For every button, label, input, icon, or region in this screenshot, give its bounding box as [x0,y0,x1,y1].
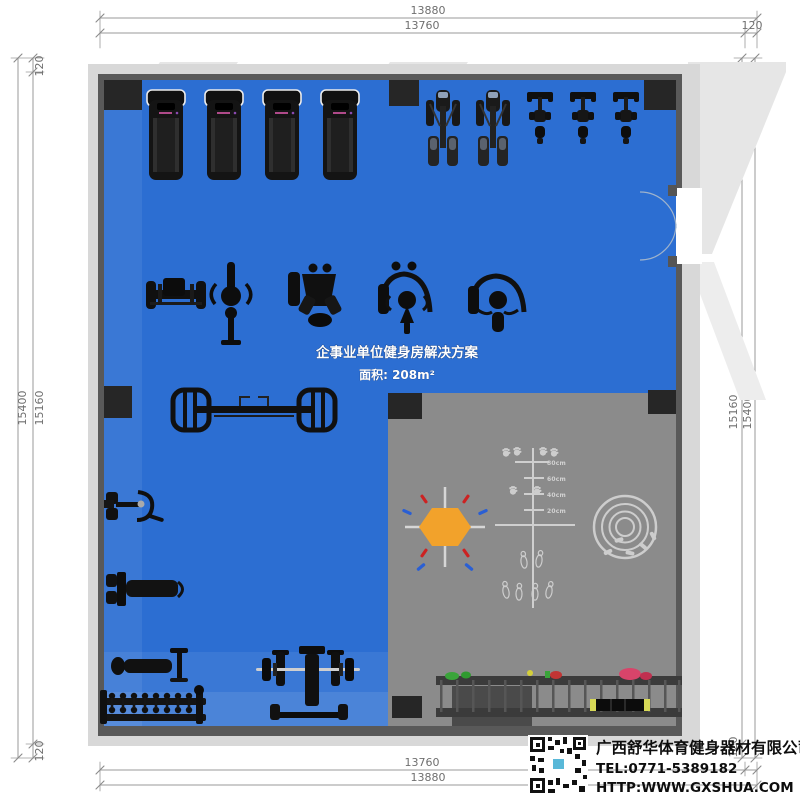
dim-top-outer: 13880 [411,4,446,17]
treadmill-icon [147,90,185,180]
dim-left-wall-bottom: 120 [33,741,46,762]
plan-area-label: 面积: 208m² [359,367,435,382]
door-leaf [668,185,677,196]
column [104,80,142,110]
company-website: HTTP:WWW.GXSHUA.COM [596,780,794,796]
door-leaf [668,256,677,267]
barbell-black [596,699,644,711]
column [648,390,676,414]
ruler-label-60cm: 60cm [547,476,566,483]
kettlebell-yellow [527,670,533,676]
wall-cap-shadow [688,62,786,254]
barbell-plate-yellow [644,699,650,711]
column [104,386,132,418]
dim-bottom-outer: 13880 [411,771,446,784]
column [389,80,419,106]
gym-floor-plan: 13880 13760 120 13760 13880 15400 15160 … [0,0,800,807]
column [388,393,422,419]
column [644,80,676,110]
dim-left-inner: 15160 [33,391,46,426]
kettlebell-red [550,671,562,679]
door-opening [676,188,702,264]
company-tel: TEL:0771-5389182 [596,761,737,777]
dim-top-inner: 13760 [405,19,440,32]
kettlebell-pink [619,668,641,680]
treadmill-icon [321,90,359,180]
ruler-label-40cm: 40cm [547,492,566,499]
treadmill-icon [263,90,301,180]
barbell-plate-yellow [590,699,596,711]
dim-right-inner: 15160 [727,395,740,430]
strength-machine-icon [146,278,206,309]
treadmill-icon [205,90,243,180]
ruler-label-80cm: 80cm [547,460,566,467]
dim-bottom-inner: 13760 [405,756,440,769]
company-name: 广西舒华体育健身器材有限公司 [596,738,800,757]
qr-code [528,735,588,795]
column [392,696,422,718]
plan-title: 企事业单位健身房解决方案 [315,344,478,361]
kettlebell-green [445,672,459,680]
dim-left-wall-top: 120 [33,56,46,77]
dim-left-outer: 15400 [16,391,29,426]
kettlebell-green [461,672,471,679]
kettlebell-green [545,671,550,678]
company-info-block: 广西舒华体育健身器材有限公司 TEL:0771-5389182 HTTP:WWW… [528,735,800,796]
ruler-label-20cm: 20cm [547,508,566,515]
kettlebell-red [640,672,652,680]
dim-top-wall: 120 [742,19,763,32]
floor-plan-canvas: 13880 13760 120 13760 13880 15400 15160 … [0,0,800,807]
